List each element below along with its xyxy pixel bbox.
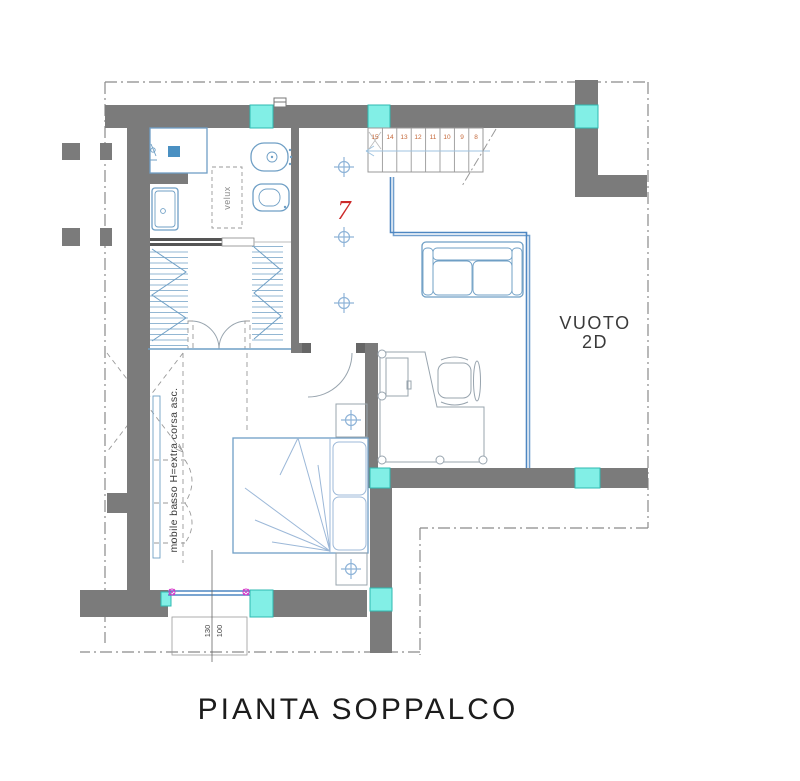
sofa — [422, 242, 523, 297]
step-number: 11 — [430, 134, 437, 141]
step-number: 14 — [386, 134, 394, 141]
step-number: 8 — [474, 134, 478, 141]
room-number-label: 7 — [337, 195, 352, 225]
dimension-height: 100 — [215, 625, 224, 638]
void-label-line2: 2D — [582, 332, 608, 352]
cabinet-note-label: mobile basso H=extra corsa asc. — [168, 387, 180, 552]
sink-icon — [152, 188, 178, 230]
roof-vent-icon — [274, 98, 286, 107]
void-label-line1: VUOTO — [559, 313, 630, 333]
step-number: 15 — [371, 134, 379, 141]
step-number: 10 — [443, 134, 451, 141]
step-number: 12 — [414, 134, 422, 141]
bed — [233, 438, 368, 553]
shower-icon — [150, 128, 207, 173]
plan-title: PIANTA SOPPALCO — [198, 693, 519, 726]
step-number: 9 — [460, 134, 464, 141]
floor-plan-page: velux — [0, 0, 800, 781]
floor-plan-drawing: velux — [0, 0, 800, 781]
step-number: 13 — [400, 134, 408, 141]
wardrobe-left — [150, 248, 188, 347]
toilet-icon — [253, 184, 289, 211]
wardrobe-right — [252, 245, 283, 342]
velux-label: velux — [222, 186, 232, 210]
dimension-width: 130 — [203, 625, 212, 638]
